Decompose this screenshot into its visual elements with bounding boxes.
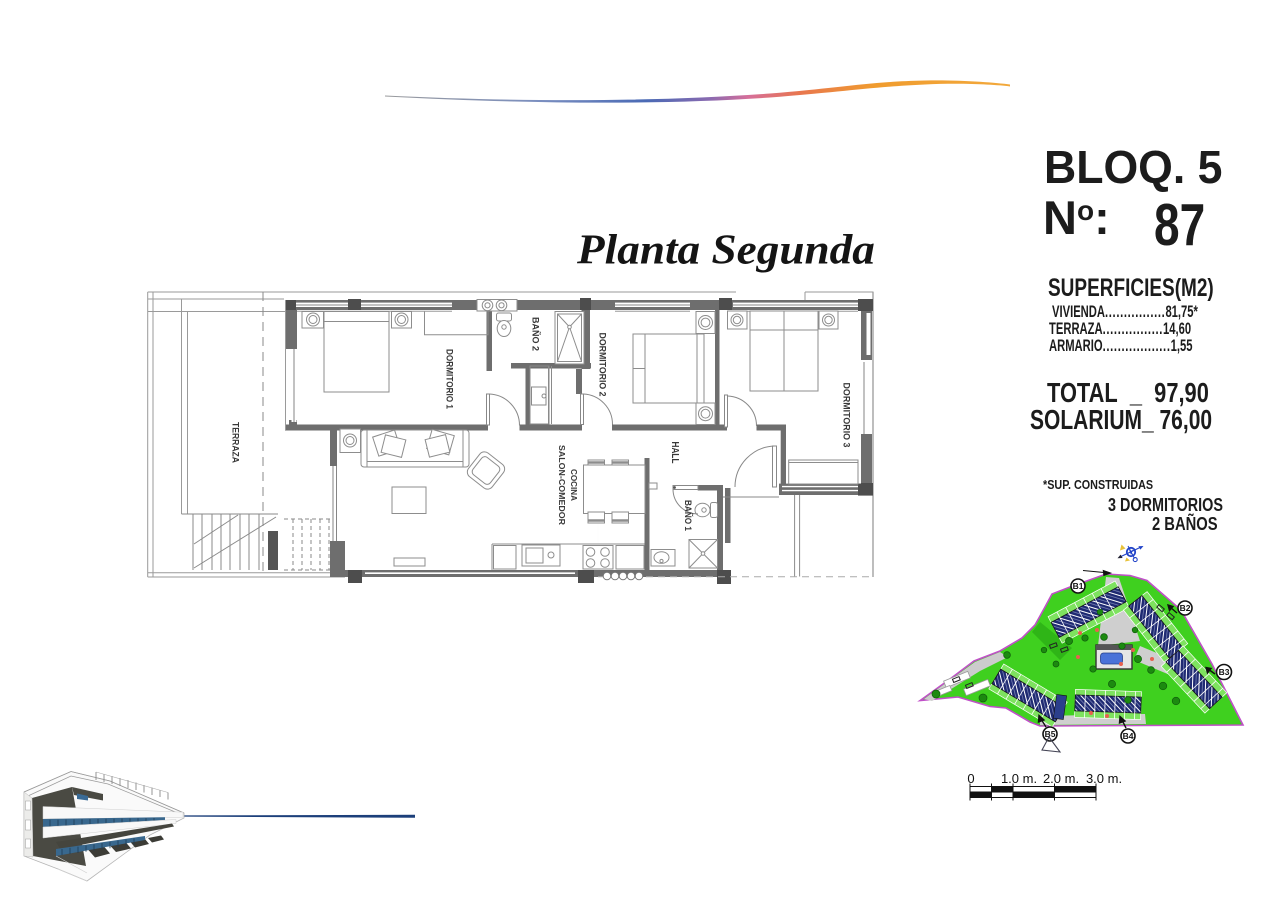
- svg-text:DORMITORIO 2: DORMITORIO 2: [598, 333, 608, 397]
- svg-text:DORMITORIO 3: DORMITORIO 3: [842, 383, 852, 448]
- svg-text:B3: B3: [1219, 667, 1230, 677]
- svg-text:B4: B4: [1123, 731, 1134, 741]
- svg-text:1.0 m.: 1.0 m.: [1001, 771, 1037, 786]
- svg-text:BAÑO 1: BAÑO 1: [683, 500, 693, 531]
- svg-text:BAÑO 2: BAÑO 2: [531, 317, 541, 351]
- svg-text:COCINA: COCINA: [569, 469, 579, 501]
- svg-text:0: 0: [967, 771, 974, 786]
- svg-text:B2: B2: [1180, 603, 1191, 613]
- svg-text:B1: B1: [1073, 581, 1084, 591]
- svg-text:TERRAZA: TERRAZA: [231, 422, 241, 463]
- svg-text:B5: B5: [1045, 729, 1056, 739]
- svg-text:SALON-COMEDOR: SALON-COMEDOR: [557, 445, 567, 525]
- svg-text:3.0 m.: 3.0 m.: [1086, 771, 1122, 786]
- svg-text:HALL: HALL: [669, 442, 680, 464]
- svg-text:2.0 m.: 2.0 m.: [1043, 771, 1079, 786]
- svg-text:DORMITORIO 1: DORMITORIO 1: [445, 349, 455, 409]
